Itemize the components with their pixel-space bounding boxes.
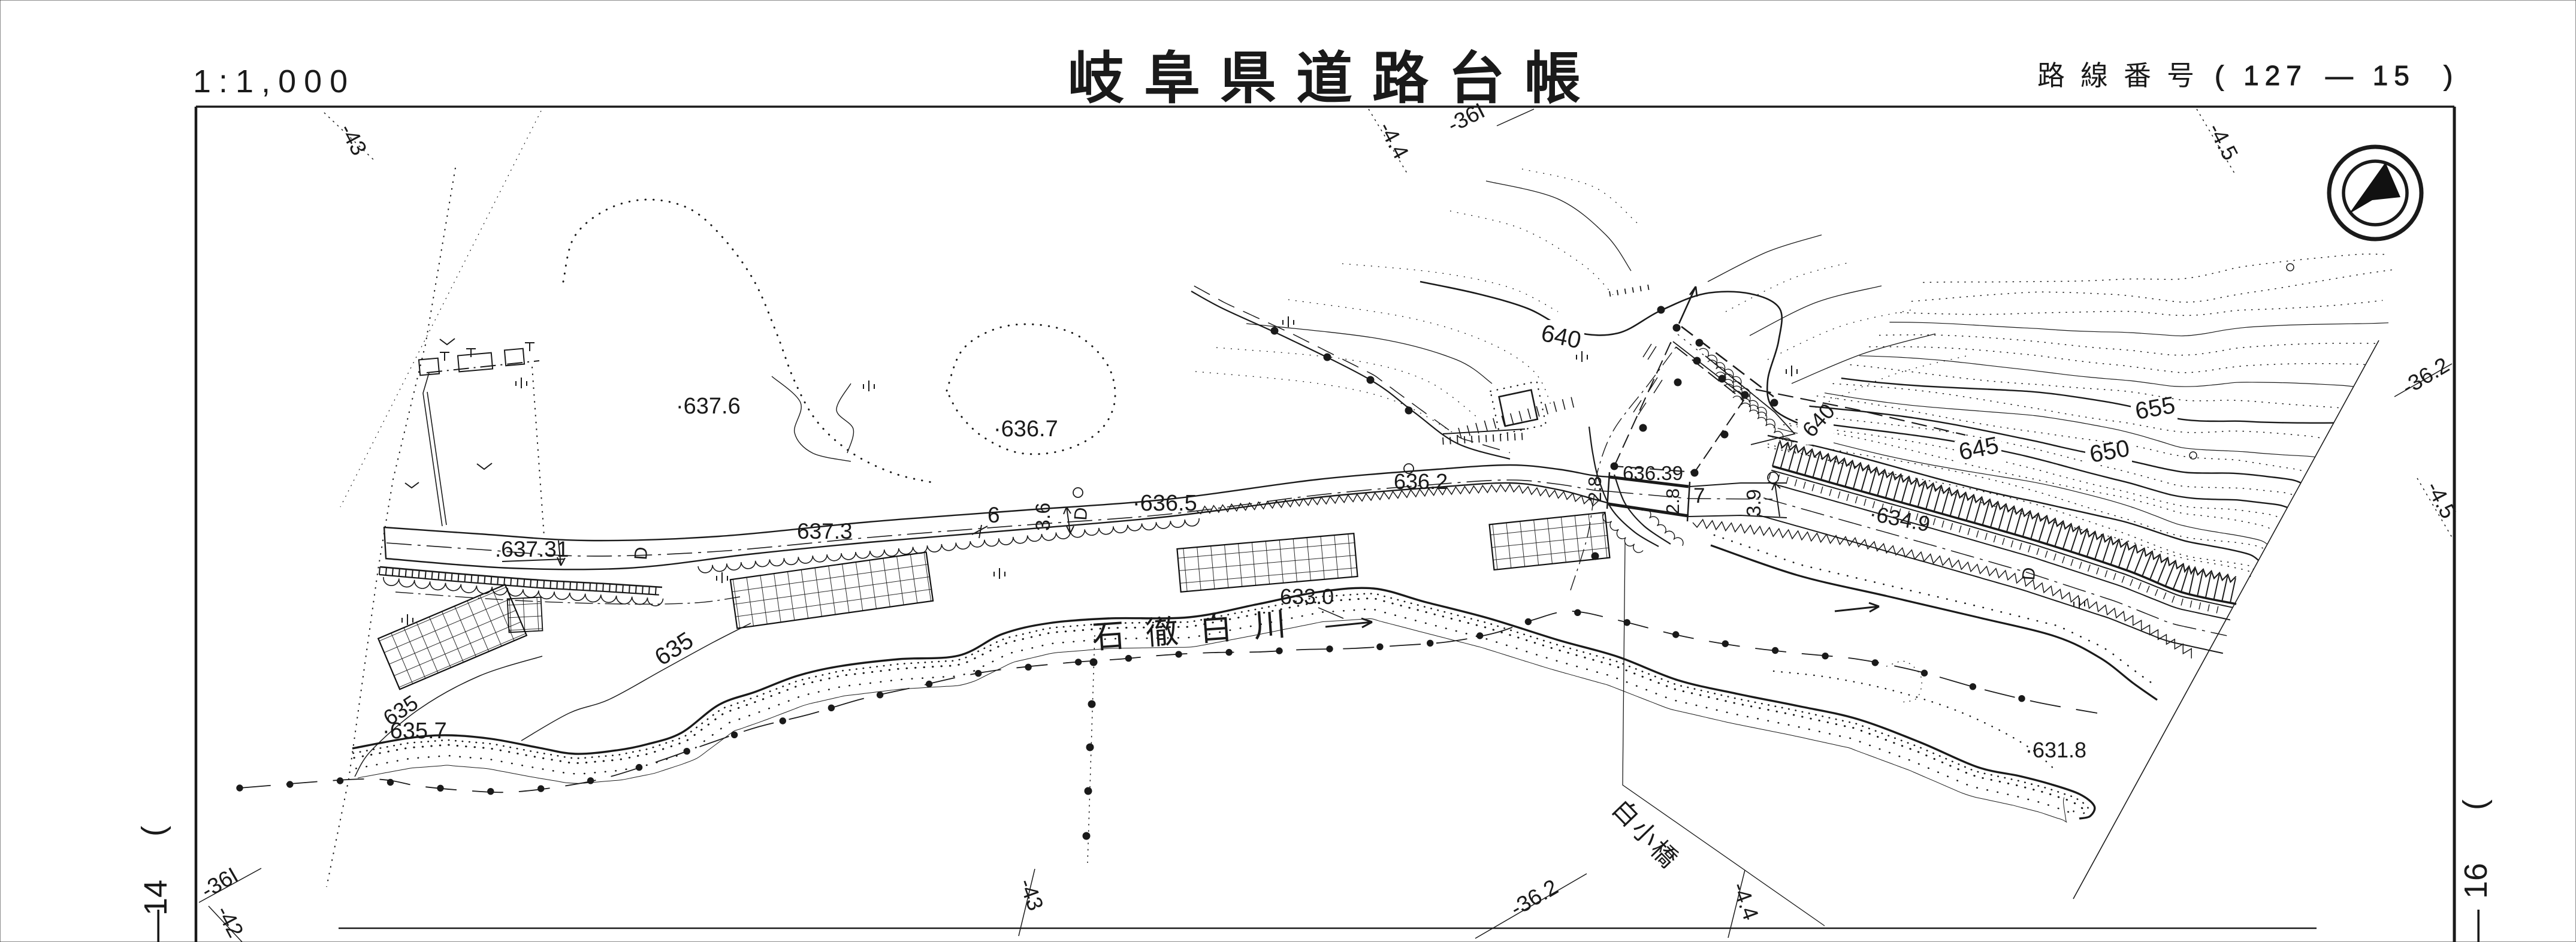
svg-text:636.2: 636.2 [1394,469,1448,494]
svg-text:(: ( [135,826,171,837]
svg-text:(: ( [2457,799,2493,810]
svg-text:D: D [631,547,651,561]
svg-text:3.6: 3.6 [1032,503,1055,531]
svg-text:·636.7: ·636.7 [993,416,1058,442]
svg-text:3.9: 3.9 [1743,489,1765,517]
svg-text:16: 16 [2458,863,2494,899]
svg-text:637.3: 637.3 [797,519,853,544]
svg-text:6: 6 [987,503,1000,527]
svg-text:·637.6: ·637.6 [676,394,741,419]
svg-text:·631.8: ·631.8 [2025,738,2086,762]
svg-text:D: D [1071,507,1091,521]
svg-text:2.8: 2.8 [1662,488,1683,514]
svg-text:633.0: 633.0 [1280,584,1334,609]
svg-text:7: 7 [1693,484,1705,508]
svg-text:D: D [2019,567,2039,581]
svg-text:—: — [2458,910,2494,942]
svg-text:路線番号( 127— 15): 路線番号( 127— 15) [2037,60,2468,91]
svg-text:岐阜県道路台帳: 岐阜県道路台帳 [1068,47,1600,110]
svg-text:—: — [138,910,174,942]
svg-text:·636.5: ·636.5 [1133,491,1197,516]
svg-text:1:1,000: 1:1,000 [193,64,355,99]
